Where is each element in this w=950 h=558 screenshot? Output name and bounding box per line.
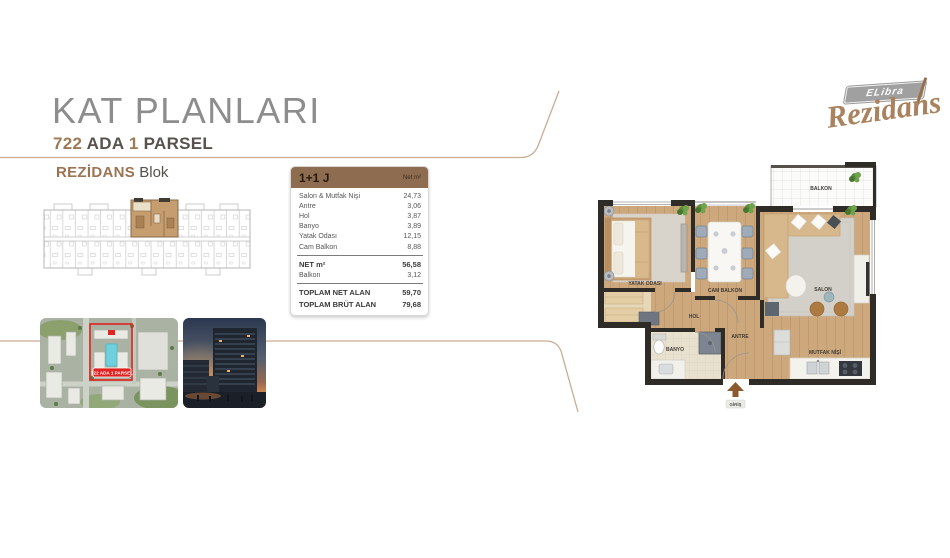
room-label-banyo: BANYO (666, 347, 684, 353)
unit-floor-plan: BALKON (593, 162, 885, 414)
room-label-hol: HOL (689, 314, 700, 320)
block-label: REZİDANS Blok (56, 164, 168, 181)
table-row: Banyo3,89 (299, 222, 421, 232)
site-plan-badge: 722 ADA 1 PARSEL (91, 368, 133, 377)
table-row: Salon & Mutfak Nişi24,73 (299, 191, 421, 201)
parcel-subtitle: 722 ADA 1 PARSEL (53, 134, 213, 154)
room-label-yatak-odasi: YATAK ODASI (628, 281, 662, 287)
site-plan-thumbnail: 722 ADA 1 PARSEL (40, 318, 178, 408)
toplam-brut-row: TOPLAM BRÜT ALAN79,68 (299, 299, 421, 311)
table-row: Cam Balkon8,88 (299, 242, 421, 252)
unit-type: 1+1 J (299, 171, 329, 185)
toplam-net-row: TOPLAM NET ALAN59,70 (299, 287, 421, 299)
table-row: Yatak Odası12,15 (299, 232, 421, 242)
entrance-marker: GİRİŞ (726, 382, 745, 408)
page-title: KAT PLANLARI (52, 90, 321, 132)
bedroom-furniture (604, 206, 687, 282)
balcony-area: BALKON (771, 162, 876, 207)
table-separator (297, 255, 423, 256)
room-label-cam-balkon: CAM BALKON (708, 288, 743, 294)
unit-col-header: Net m² (403, 175, 421, 181)
room-label-antre: ANTRE (731, 334, 749, 340)
key-plan (38, 196, 268, 308)
table-row: Antre3,06 (299, 201, 421, 211)
unit-table-header: 1+1 J Net m² (291, 167, 428, 188)
parcel-parsel-number: 1 (129, 134, 139, 153)
table-separator (297, 283, 423, 284)
brand-script: Rezidans (824, 84, 943, 136)
building-render-thumbnail (183, 318, 266, 408)
svg-text:722 ADA 1 PARSEL: 722 ADA 1 PARSEL (91, 371, 133, 376)
room-label-giris: GİRİŞ (730, 402, 742, 407)
room-label-salon: SALON (814, 287, 832, 293)
dining-furniture (696, 222, 753, 282)
table-row: Hol3,87 (299, 211, 421, 221)
salon-furniture (764, 214, 869, 316)
key-plan-highlighted-unit (131, 198, 178, 237)
room-label-mutfak-nisi: MUTFAK NİŞİ (809, 349, 842, 356)
room-label-balkon: BALKON (810, 186, 832, 192)
unit-area-table: 1+1 J Net m² Salon & Mutfak Nişi24,73 An… (290, 166, 429, 316)
brand-logo: ELibra Rezidans (824, 76, 946, 148)
balkon-row: Balkon3,12 (299, 270, 421, 280)
parcel-ada-number: 722 (53, 134, 82, 153)
slide-canvas: KAT PLANLARI 722 ADA 1 PARSEL REZİDANS B… (0, 0, 950, 558)
net-total-row: NET m²56,58 (299, 258, 421, 270)
